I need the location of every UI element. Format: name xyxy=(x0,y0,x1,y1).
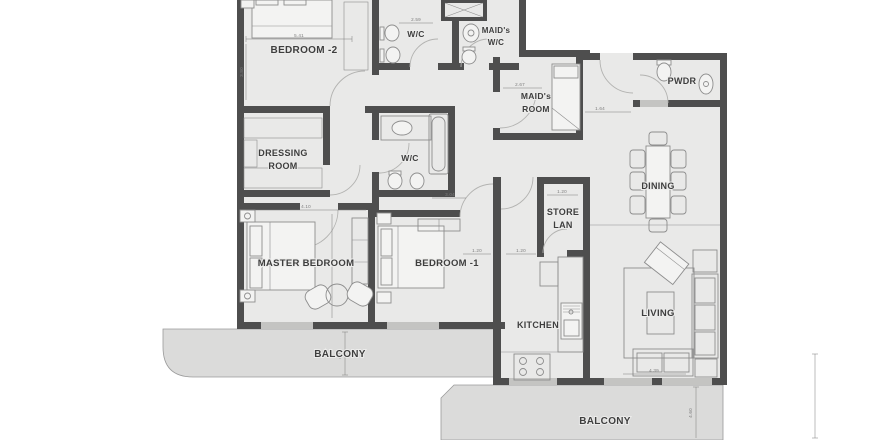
window-living-a xyxy=(604,378,652,385)
shower-stall xyxy=(443,1,485,19)
dim-text: 1.20 xyxy=(557,189,567,194)
wall-store-south xyxy=(537,250,543,257)
bidet-icon xyxy=(410,173,424,189)
room-label-balcony-left: BALCONY xyxy=(314,349,366,360)
wall-south-living xyxy=(652,378,662,385)
dim-text: 1.20 xyxy=(516,248,526,253)
wall-south-bedrooms xyxy=(237,322,261,329)
floor-plan-canvas: 5.41 3.80 4.10 3.04 2.67 1.64 1.20 1.20 … xyxy=(0,0,890,440)
dim-text: 5.41 xyxy=(294,33,304,38)
bedroom2-furniture xyxy=(241,0,332,38)
window-bedroom1 xyxy=(387,322,439,329)
bidet-icon xyxy=(386,47,400,63)
wall-dressing-east xyxy=(323,113,330,165)
dim-text: 3.80 xyxy=(239,67,244,77)
room-label-wc-mid: W/C xyxy=(401,153,418,163)
pwdr-door-threshold xyxy=(640,100,668,107)
dim-text: 1.20 xyxy=(472,248,482,253)
wall-store-north xyxy=(537,177,590,184)
wall-wc-mid-north xyxy=(379,106,455,113)
wall-kitchen-living-divider xyxy=(583,177,590,385)
toilet-tank xyxy=(380,27,384,40)
sink-icon xyxy=(699,74,713,94)
wall-west xyxy=(237,0,244,329)
bidet-base xyxy=(380,49,384,62)
room-label-maids-wc-1: MAID's xyxy=(482,26,511,35)
dim-line-overall xyxy=(812,354,818,438)
wall-maids-wc-east xyxy=(519,0,526,57)
dim-text: 4.39 xyxy=(649,368,659,373)
wall-store-west xyxy=(537,177,544,257)
room-label-kitchen: KITCHEN xyxy=(517,320,559,330)
wall-maids-wc-south xyxy=(452,63,464,70)
bed xyxy=(378,226,444,288)
room-label-balcony-bottom: BALCONY xyxy=(579,416,631,427)
maids-room-furniture xyxy=(552,64,580,130)
wall-bedroom2-south xyxy=(237,106,330,113)
dim-text: 4.60 xyxy=(688,408,693,418)
wall-maids-room-south xyxy=(493,133,583,140)
room-label-maids-wc-2: W/C xyxy=(488,38,504,47)
nightstand xyxy=(241,0,254,8)
wall-wc-mid-south xyxy=(372,190,455,197)
wall-kitchen-west xyxy=(493,177,501,385)
room-label-bedroom2: BEDROOM -2 xyxy=(271,45,338,56)
toilet-icon xyxy=(385,25,399,41)
nightstand xyxy=(240,210,255,222)
wall-wc-mid-east xyxy=(448,106,455,197)
sink-icon xyxy=(392,121,412,135)
wall-north-pwdr xyxy=(633,53,727,60)
bed xyxy=(552,64,580,130)
room-label-living: LIVING xyxy=(641,308,674,319)
wall-pwdr-south xyxy=(633,100,640,107)
room-label-master: MASTER BEDROOM xyxy=(258,258,355,269)
wall-corner-stub xyxy=(365,106,372,113)
wall-master-north xyxy=(338,203,379,210)
toilet-icon xyxy=(388,173,402,189)
room-label-dining: DINING xyxy=(641,181,674,191)
dim-text: 2.67 xyxy=(515,82,525,87)
room-label-wc-top: W/C xyxy=(407,29,424,39)
nightstand xyxy=(377,292,391,303)
bed xyxy=(252,0,332,38)
window-living-b xyxy=(662,378,712,385)
sink-icon xyxy=(463,24,479,42)
nightstand xyxy=(377,213,391,224)
room-label-dressing-1: DRESSING xyxy=(258,148,307,158)
wall-wc-mid-west xyxy=(372,106,379,140)
wall-south-bedrooms xyxy=(313,322,387,329)
window-master-bedroom xyxy=(261,322,313,329)
room-label-dressing-2: ROOM xyxy=(268,161,297,171)
room-label-maids-room-2: ROOM xyxy=(522,104,550,114)
room-label-store-2: LAN xyxy=(553,220,572,230)
wall-wc-top-south xyxy=(438,63,452,70)
wall-bedroom2-east xyxy=(372,0,379,75)
wall-dressing-south xyxy=(237,190,330,197)
dim-text: 1.64 xyxy=(595,106,605,111)
wall-master-bedroom1-divider xyxy=(368,210,375,322)
dim-text: 4.10 xyxy=(301,204,311,209)
dim-text: 2.59 xyxy=(411,17,421,22)
toilet-icon xyxy=(462,50,476,64)
wall-wc-mid-west xyxy=(372,172,379,203)
wall-south-kitchen xyxy=(557,378,604,385)
wall-master-north xyxy=(237,203,300,210)
balcony-bottom-slab xyxy=(441,385,723,440)
floor-plan-svg: 5.41 3.80 4.10 3.04 2.67 1.64 1.20 1.20 … xyxy=(0,0,890,440)
nightstand xyxy=(240,290,255,302)
room-label-bedroom1: BEDROOM -1 xyxy=(415,258,479,269)
dim-text: 3.04 xyxy=(445,192,455,197)
wall-pwdr-south xyxy=(668,100,727,107)
room-label-pwdr: PWDR xyxy=(668,76,697,86)
wall-maids-room-west xyxy=(493,57,500,92)
room-label-store-1: STORE xyxy=(547,207,579,217)
room-label-maids-room-1: MAID's xyxy=(521,91,551,101)
